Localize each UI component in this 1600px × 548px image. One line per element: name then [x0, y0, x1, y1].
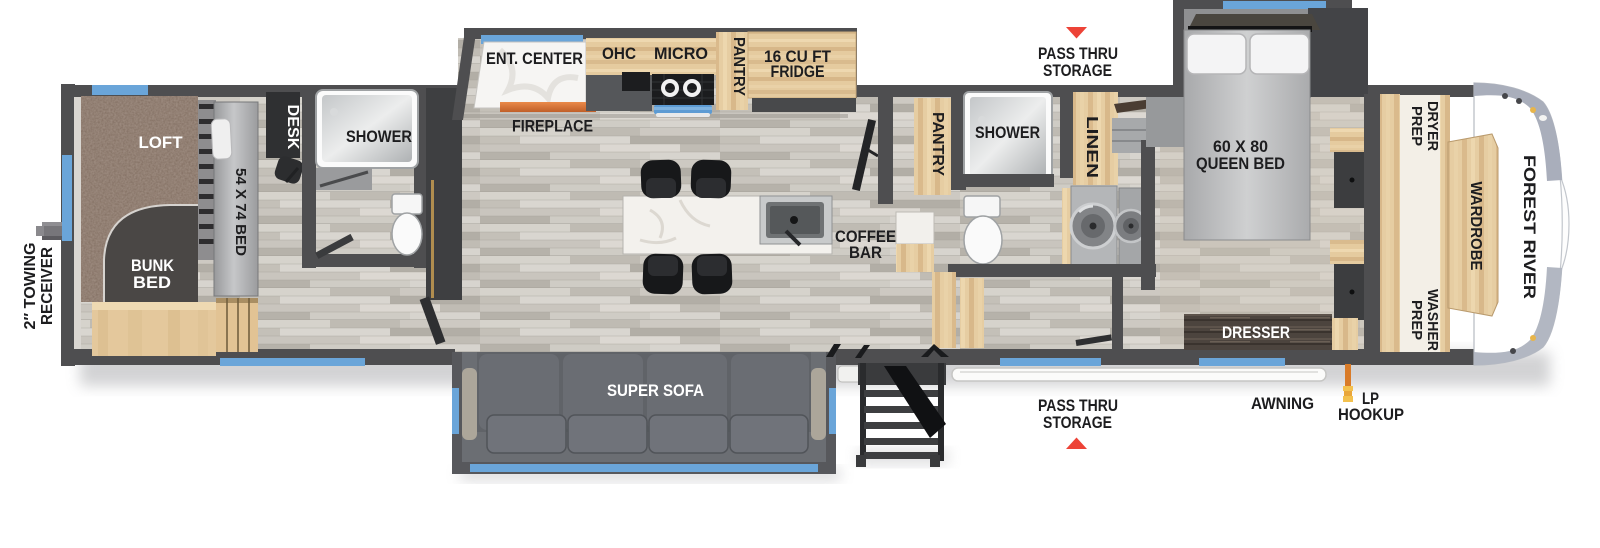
svg-text:DESK: DESK	[284, 105, 301, 150]
svg-text:SHOWER: SHOWER	[346, 127, 412, 146]
svg-text:LINEN: LINEN	[1083, 116, 1100, 178]
svg-text:HOOKUP: HOOKUP	[1338, 405, 1404, 424]
svg-text:DRYER: DRYER	[1424, 101, 1441, 151]
svg-text:FRIDGE: FRIDGE	[771, 62, 825, 81]
svg-text:FIREPLACE: FIREPLACE	[512, 117, 593, 136]
svg-text:BED: BED	[133, 273, 171, 292]
svg-text:STORAGE: STORAGE	[1043, 61, 1112, 80]
svg-text:2″ TOWING: 2″ TOWING	[22, 243, 39, 330]
svg-text:PANTRY: PANTRY	[730, 37, 747, 96]
svg-text:RECEIVER: RECEIVER	[39, 247, 56, 325]
svg-text:LOFT: LOFT	[139, 133, 184, 152]
svg-text:WARDROBE: WARDROBE	[1467, 182, 1484, 271]
svg-text:PREP: PREP	[1408, 106, 1425, 146]
svg-text:ENT. CENTER: ENT. CENTER	[486, 49, 583, 68]
svg-text:PREP: PREP	[1408, 300, 1425, 340]
svg-text:FOREST RIVER: FOREST RIVER	[1520, 155, 1539, 299]
svg-text:WASHER: WASHER	[1424, 289, 1441, 351]
svg-text:STORAGE: STORAGE	[1043, 413, 1112, 432]
svg-text:54 X 74 BED: 54 X 74 BED	[232, 168, 249, 256]
svg-text:BAR: BAR	[849, 243, 882, 262]
svg-text:SUPER SOFA: SUPER SOFA	[607, 381, 704, 400]
svg-text:SHOWER: SHOWER	[975, 123, 1040, 142]
svg-text:PANTRY: PANTRY	[929, 112, 946, 176]
svg-text:QUEEN BED: QUEEN BED	[1196, 154, 1285, 173]
svg-text:DRESSER: DRESSER	[1222, 323, 1290, 342]
svg-text:OHC: OHC	[602, 44, 636, 63]
svg-text:MICRO: MICRO	[654, 44, 708, 63]
svg-text:AWNING: AWNING	[1251, 394, 1314, 413]
